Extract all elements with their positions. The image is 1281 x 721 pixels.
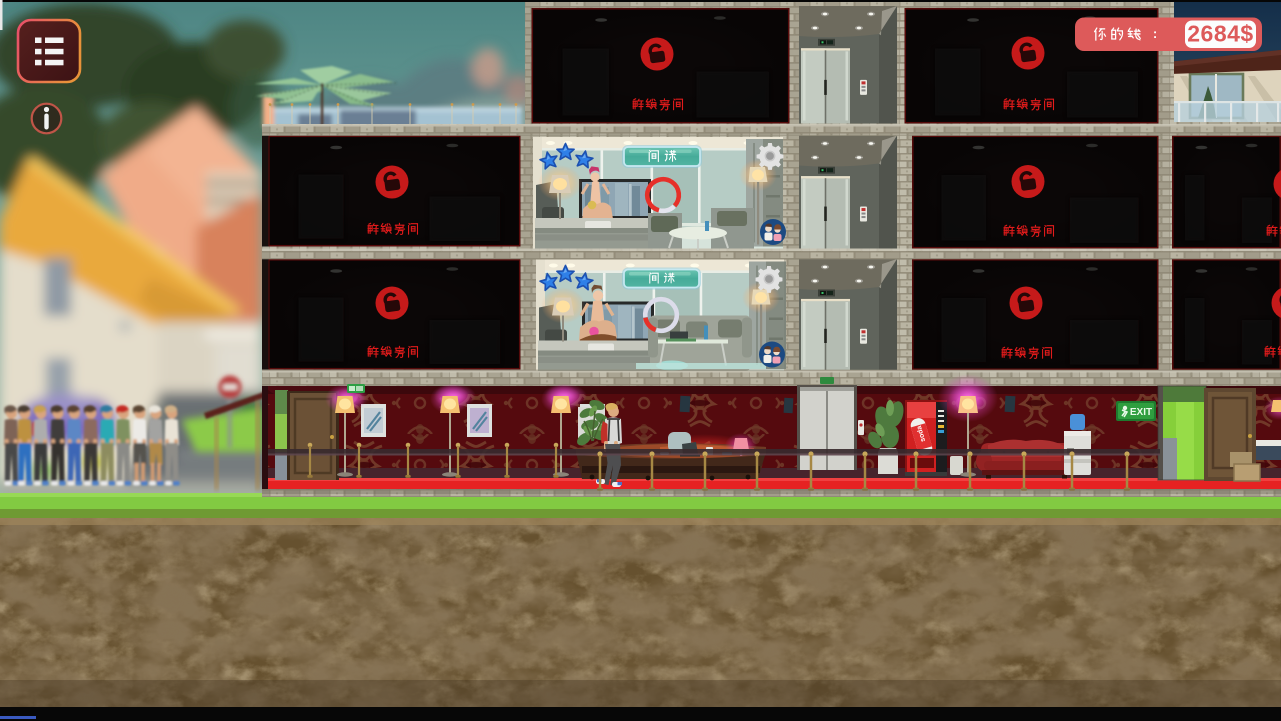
svg-text:2684$: 2684$ [1187,21,1253,47]
svg-text:EXIT: EXIT [1130,407,1152,418]
